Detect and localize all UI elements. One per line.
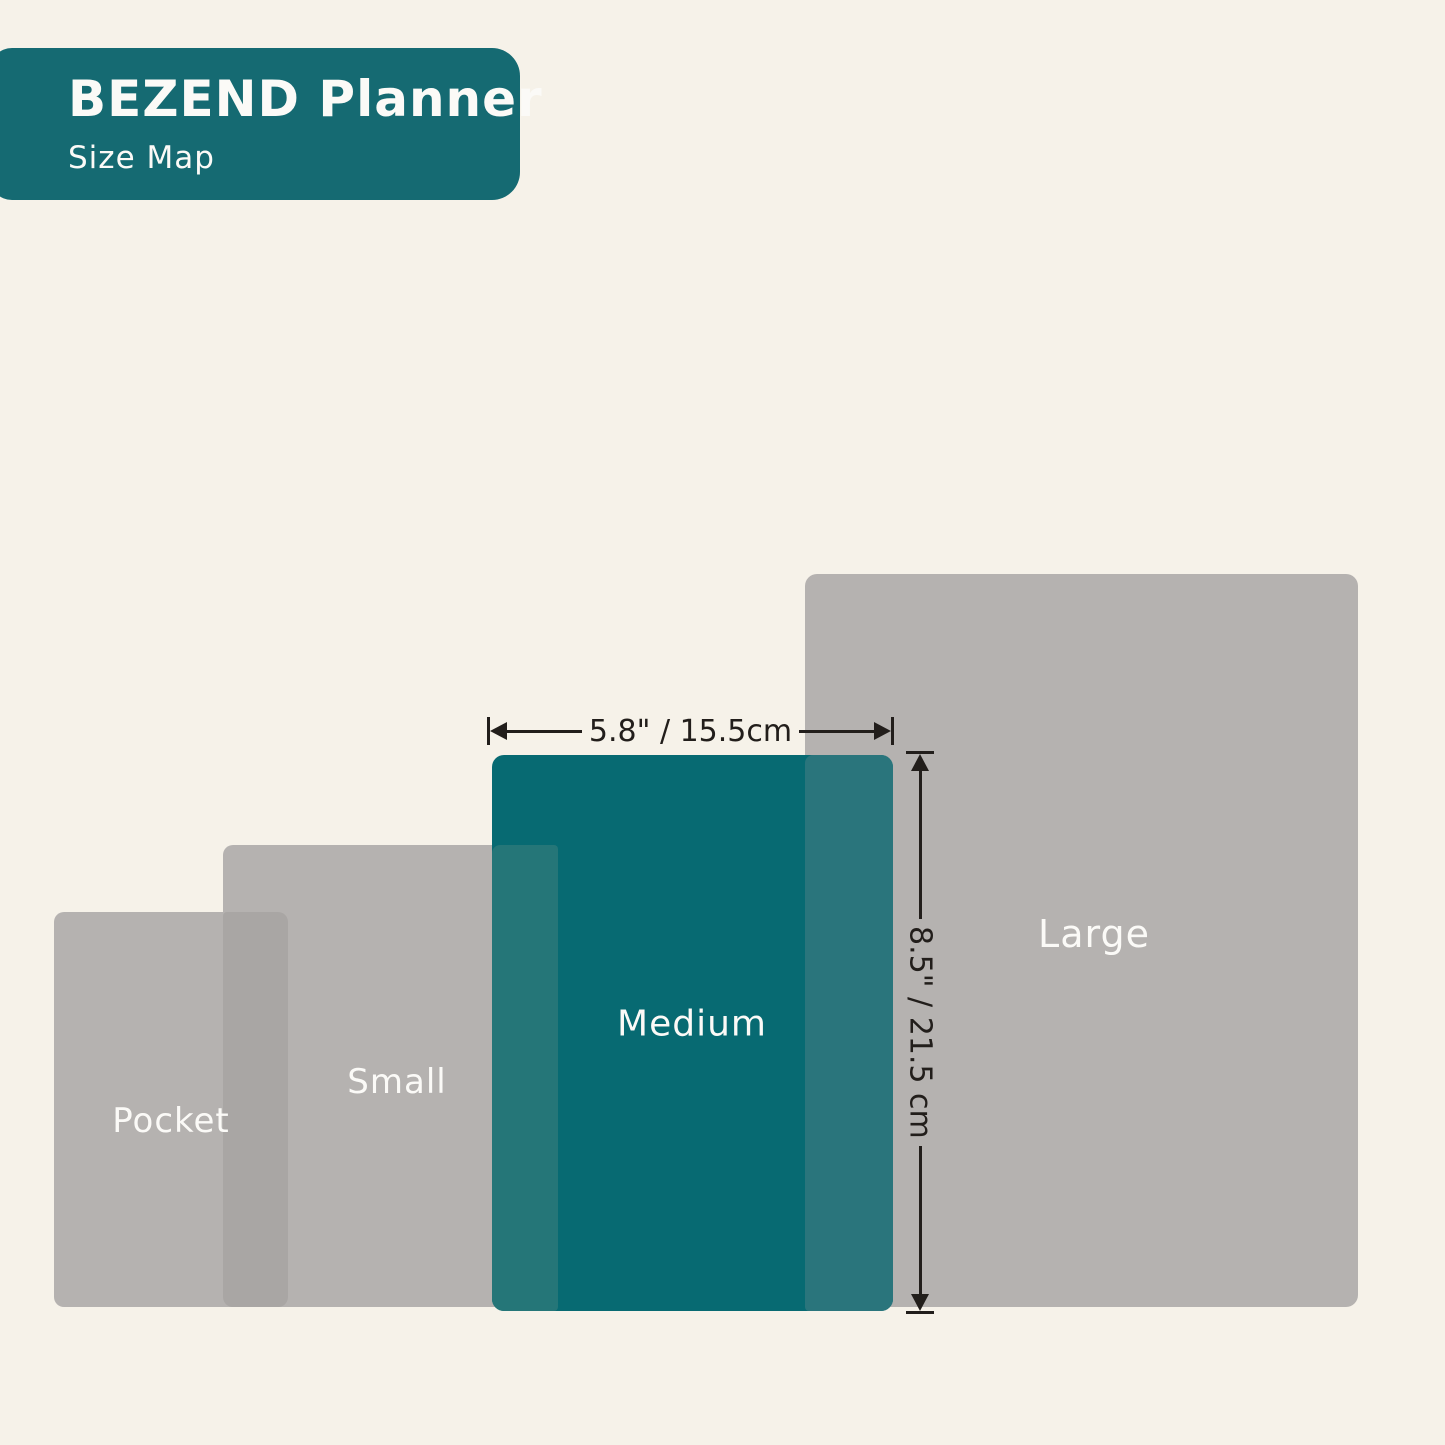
overlap-band-pocket-small (223, 912, 288, 1307)
arrow-right-icon (874, 722, 891, 740)
arrow-up-icon (911, 754, 929, 771)
dimension-line (799, 730, 874, 733)
header-subtitle: Size Map (68, 140, 510, 176)
width-dimension: 5.8" / 15.5cm (487, 713, 894, 749)
arrow-down-icon (911, 1294, 929, 1311)
overlap-band-medium-large (805, 755, 893, 1311)
arrow-left-icon (490, 722, 507, 740)
height-dimension: 8.5" / 21.5 cm (902, 751, 938, 1314)
overlap-band-small-medium (492, 845, 558, 1311)
size-label-small: Small (347, 1062, 446, 1102)
dimension-line (507, 730, 582, 733)
width-dimension-label: 5.8" / 15.5cm (582, 714, 799, 749)
dimension-tick (906, 1311, 934, 1314)
brand-title: BEZEND Planner (68, 70, 510, 128)
dimension-tick (891, 717, 894, 745)
size-label-medium: Medium (617, 1004, 767, 1045)
dimension-line (919, 771, 922, 919)
size-label-pocket: Pocket (112, 1101, 230, 1141)
size-map-canvas: BEZEND Planner Size Map Pocket Small Med… (0, 0, 1445, 1445)
height-dimension-label: 8.5" / 21.5 cm (903, 919, 938, 1146)
header-card: BEZEND Planner Size Map (0, 48, 520, 200)
dimension-line (919, 1146, 922, 1294)
size-label-large: Large (1038, 912, 1150, 956)
